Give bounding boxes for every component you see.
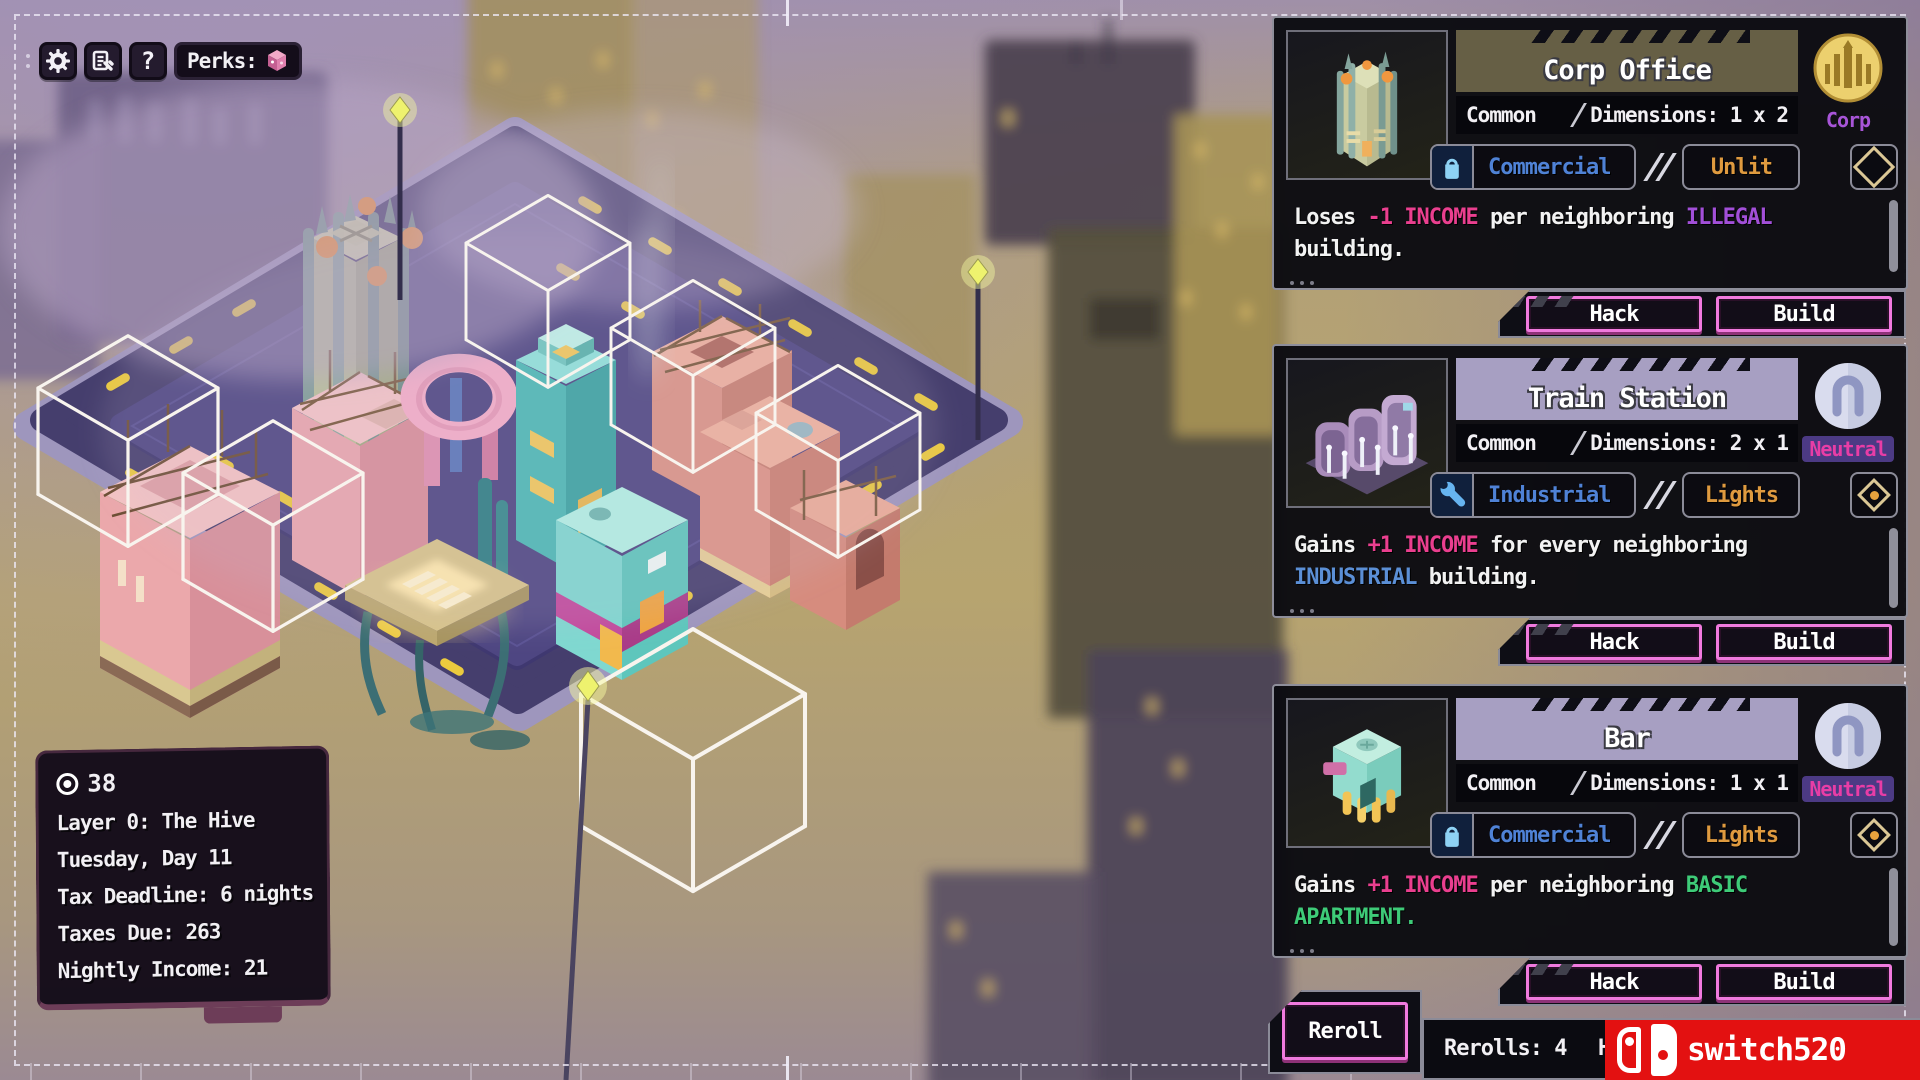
category-chip: Commercial: [1430, 812, 1636, 858]
lighting-chip: Unlit: [1682, 144, 1800, 190]
description-scrollbar[interactable]: [1889, 528, 1898, 608]
lit-dot: [1870, 831, 1879, 840]
lighting-label: Lights: [1705, 823, 1778, 848]
rarity-label: Common: [1466, 103, 1536, 127]
lit-indicator-chip: [1850, 472, 1898, 518]
game-screen: ? Perks: 38 Layer 0: The Hive Tuesday, D…: [0, 0, 1920, 1080]
card-title-bar: Bar: [1456, 698, 1798, 760]
corp-faction-icon: [1812, 32, 1884, 104]
reroll-button[interactable]: Reroll: [1282, 1002, 1408, 1060]
dimensions-label: Dimensions: 1 x 2: [1590, 103, 1788, 127]
top-toolbar: ? Perks:: [26, 42, 302, 80]
train-station-art: [1288, 360, 1446, 506]
category-label: Commercial: [1474, 155, 1634, 180]
watermark: switch520: [1605, 1020, 1920, 1080]
lit-indicator-chip: [1850, 812, 1898, 858]
card-button-bar: Hack Build: [1498, 618, 1906, 666]
credits-icon: [56, 773, 78, 795]
layer-label: Layer 0: The Hive: [56, 801, 308, 842]
card-title: Bar: [1604, 723, 1650, 754]
card-panel: Train Station Common Dimensions: 2 x 1 N…: [1272, 344, 1908, 618]
card-tag-row: Commercial Unlit: [1430, 142, 1898, 192]
card-button-bar: Hack Build: [1498, 958, 1906, 1006]
dimensions-label: Dimensions: 1 x 1: [1590, 771, 1788, 795]
help-button[interactable]: ?: [129, 42, 167, 80]
industrial-wrench-icon: [1432, 474, 1474, 516]
card-description: Gains +1 INCOME per neighboring BASIC AP…: [1294, 870, 1870, 934]
card-panel: Bar Common Dimensions: 1 x 1 Neutral: [1272, 684, 1908, 958]
divider-double-slash: [1636, 472, 1682, 518]
card-tag-row: Commercial Lights: [1430, 810, 1898, 860]
rerolls-count: Rerolls: 4: [1444, 1036, 1566, 1061]
lighting-chip: Lights: [1682, 472, 1800, 518]
dimensions-label: Dimensions: 2 x 1: [1590, 431, 1788, 455]
card-title-bar: Corp Office: [1456, 30, 1798, 92]
corp-office-art: [1288, 32, 1446, 178]
nightly-income-label: Nightly Income: 21: [58, 949, 310, 990]
divider-slash: [1570, 771, 1587, 795]
lighting-label: Lights: [1705, 483, 1778, 508]
card-description: Loses -1 INCOME per neighboring ILLEGAL …: [1294, 202, 1870, 266]
card-meta-row: Common Dimensions: 2 x 1: [1456, 424, 1798, 462]
description-scrollbar[interactable]: [1889, 868, 1898, 946]
lighting-chip: Lights: [1682, 812, 1800, 858]
build-button[interactable]: Build: [1716, 296, 1892, 332]
building-card-bar: Bar Common Dimensions: 1 x 1 Neutral: [1272, 684, 1908, 1006]
category-label: Commercial: [1474, 823, 1634, 848]
card-footer-dots: [1290, 609, 1314, 613]
faction-label: Neutral: [1802, 776, 1893, 802]
log-button[interactable]: [84, 42, 122, 80]
stats-panel: 38 Layer 0: The Hive Tuesday, Day 11 Tax…: [35, 745, 331, 1010]
tax-deadline-label: Tax Deadline: 6 nights: [57, 875, 309, 916]
lit-indicator-chip: [1850, 144, 1898, 190]
card-tag-row: Industrial Lights: [1430, 470, 1898, 520]
commercial-bag-icon: [1432, 146, 1474, 188]
hazard-stripes-small: [1507, 964, 1578, 975]
settings-button[interactable]: [39, 42, 77, 80]
hazard-stripes-small: [1507, 296, 1578, 307]
notes-icon: [91, 49, 115, 73]
card-description-area: Loses -1 INCOME per neighboring ILLEGAL …: [1284, 196, 1896, 284]
credits-value: 38: [87, 769, 116, 798]
description-scrollbar[interactable]: [1889, 200, 1898, 272]
card-description-area: Gains +1 INCOME for every neighboring IN…: [1284, 524, 1896, 612]
divider-double-slash: [1636, 144, 1682, 190]
building-card-train-station: Train Station Common Dimensions: 2 x 1 N…: [1272, 344, 1908, 666]
faction-badge: Neutral: [1798, 698, 1898, 828]
hazard-stripes: [1531, 30, 1750, 43]
faction-badge: Neutral: [1798, 358, 1898, 488]
perks-panel[interactable]: Perks:: [174, 42, 302, 80]
perk-cube-icon: [265, 48, 289, 74]
border-tick-top-2: [1120, 0, 1123, 20]
building-portrait: [1286, 698, 1448, 848]
gear-icon: [46, 49, 70, 73]
faction-label: Neutral: [1802, 436, 1893, 462]
divider-double-slash: [1636, 812, 1682, 858]
building-portrait: [1286, 358, 1448, 508]
card-panel: Corp Office Common Dimensions: 1 x 2: [1272, 16, 1908, 290]
card-footer-dots: [1290, 281, 1314, 285]
card-title: Corp Office: [1543, 55, 1711, 86]
faction-badge: Corp: [1798, 30, 1898, 160]
lighting-label: Unlit: [1711, 155, 1772, 180]
divider-slash: [1570, 431, 1587, 455]
lit-dot: [1870, 491, 1879, 500]
card-button-bar: Hack Build: [1498, 290, 1906, 338]
rarity-label: Common: [1466, 771, 1536, 795]
perks-label: Perks:: [187, 49, 257, 73]
card-title: Train Station: [1528, 383, 1726, 414]
card-footer-dots: [1290, 949, 1314, 953]
rarity-label: Common: [1466, 431, 1536, 455]
building-portrait: [1286, 30, 1448, 180]
reroll-container: Reroll: [1268, 990, 1422, 1074]
card-meta-row: Common Dimensions: 1 x 1: [1456, 764, 1798, 802]
building-card-corp-office: Corp Office Common Dimensions: 1 x 2: [1272, 16, 1908, 338]
border-tick-top: [786, 0, 789, 26]
diamond-icon: [1853, 146, 1895, 188]
date-label: Tuesday, Day 11: [57, 838, 309, 879]
neutral-faction-icon: [1812, 700, 1884, 772]
build-button[interactable]: Build: [1716, 624, 1892, 660]
hazard-stripes-small: [1507, 624, 1578, 635]
card-title-bar: Train Station: [1456, 358, 1798, 420]
build-button[interactable]: Build: [1716, 964, 1892, 1000]
taxes-due-label: Taxes Due: 263: [57, 912, 309, 953]
hazard-stripes: [1531, 358, 1750, 371]
switch-logo-left-icon: [1617, 1027, 1641, 1073]
watermark-text: switch520: [1687, 1032, 1846, 1068]
commercial-bag-icon: [1432, 814, 1474, 856]
card-meta-row: Common Dimensions: 1 x 2: [1456, 96, 1798, 134]
help-icon: ?: [141, 49, 155, 73]
toolbar-dots: [26, 54, 30, 68]
category-chip: Commercial: [1430, 144, 1636, 190]
card-description: Gains +1 INCOME for every neighboring IN…: [1294, 530, 1870, 594]
category-chip: Industrial: [1430, 472, 1636, 518]
card-description-area: Gains +1 INCOME per neighboring BASIC AP…: [1284, 864, 1896, 952]
switch-logo-right-icon: [1651, 1024, 1677, 1076]
category-label: Industrial: [1474, 483, 1634, 508]
bar-art: [1288, 700, 1446, 846]
hazard-stripes: [1531, 698, 1750, 711]
faction-label: Corp: [1826, 108, 1870, 132]
divider-slash: [1570, 103, 1587, 127]
neutral-faction-icon: [1812, 360, 1884, 432]
